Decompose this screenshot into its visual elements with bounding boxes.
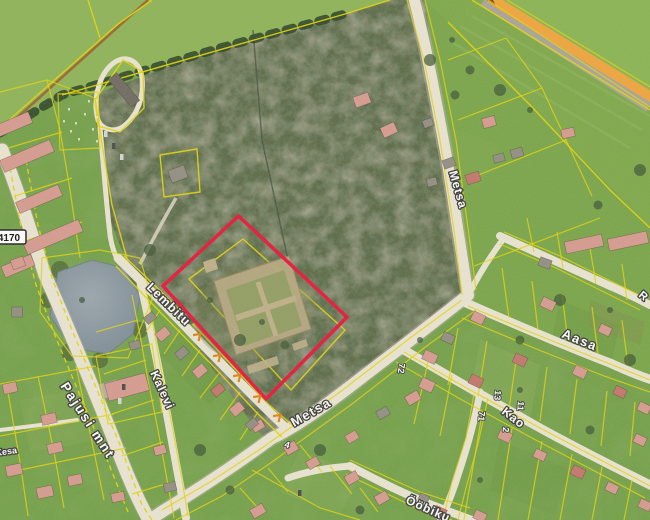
map-viewport[interactable]: Pajusi mnt Lembitu Kalevi Metsa Metsa Aa… — [0, 0, 650, 520]
aerial-map-canvas[interactable]: Pajusi mnt Lembitu Kalevi Metsa Metsa Aa… — [0, 0, 650, 520]
photo-grain-overlay — [0, 0, 650, 520]
